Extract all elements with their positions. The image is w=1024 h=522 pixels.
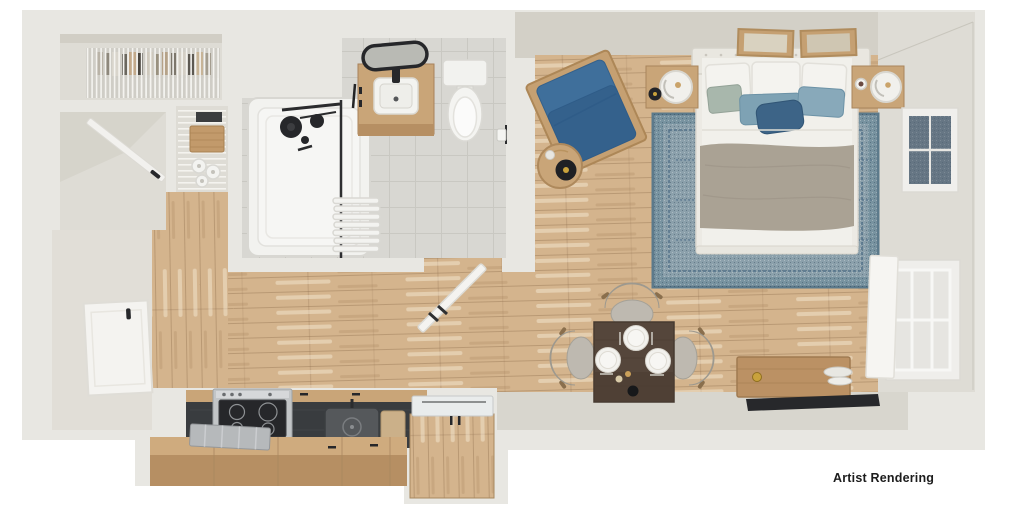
candle [616,376,623,383]
wall-art-right [801,29,857,57]
closet [60,34,222,100]
candle [625,371,631,377]
refrigerator-handle [450,416,453,425]
wire-shelf-lower [120,78,220,96]
cabinet-handle [370,444,378,447]
dish-rack [189,424,270,450]
entry-door-handle [126,308,131,319]
towel-radiator [333,198,380,252]
pantry-dark-item [196,112,222,122]
side-table [538,144,582,188]
nightstand-left [646,66,698,108]
small-cup [546,151,555,160]
pillow-steel [797,86,845,117]
floorplan-rendering [0,0,1024,522]
wine-bottle [628,386,639,397]
decor-dish [824,367,852,377]
sink-drain [394,97,399,102]
cabinet-handle [328,446,336,449]
footboard [696,246,858,254]
refrigerator-handle [458,416,461,425]
pantry [176,106,228,192]
bed [692,48,870,254]
entry-door [84,300,153,395]
decor-dish [828,377,852,385]
kitchen [150,389,494,498]
console-knob [753,373,762,382]
vanity-mirror [362,41,428,70]
shower-valve [301,136,309,144]
closet-niche-shadow [60,34,222,43]
bathroom-doorway-threshold [424,258,502,273]
wall-art-left [738,29,794,57]
pillow-sage [707,84,744,113]
blanket [700,143,854,230]
window-upper [902,108,958,192]
artist-rendering-label: Artist Rendering [833,471,934,485]
cabinet-handle [352,393,360,396]
media-console [737,357,852,397]
refrigerator [410,396,494,498]
pantry-basket [190,126,224,152]
closet-door-panel [866,255,898,378]
vanity-sink [358,64,434,136]
floorplan-canvas: Artist Rendering [0,0,1024,522]
nightstand-right [852,66,904,108]
cabinet-handle [300,393,308,396]
